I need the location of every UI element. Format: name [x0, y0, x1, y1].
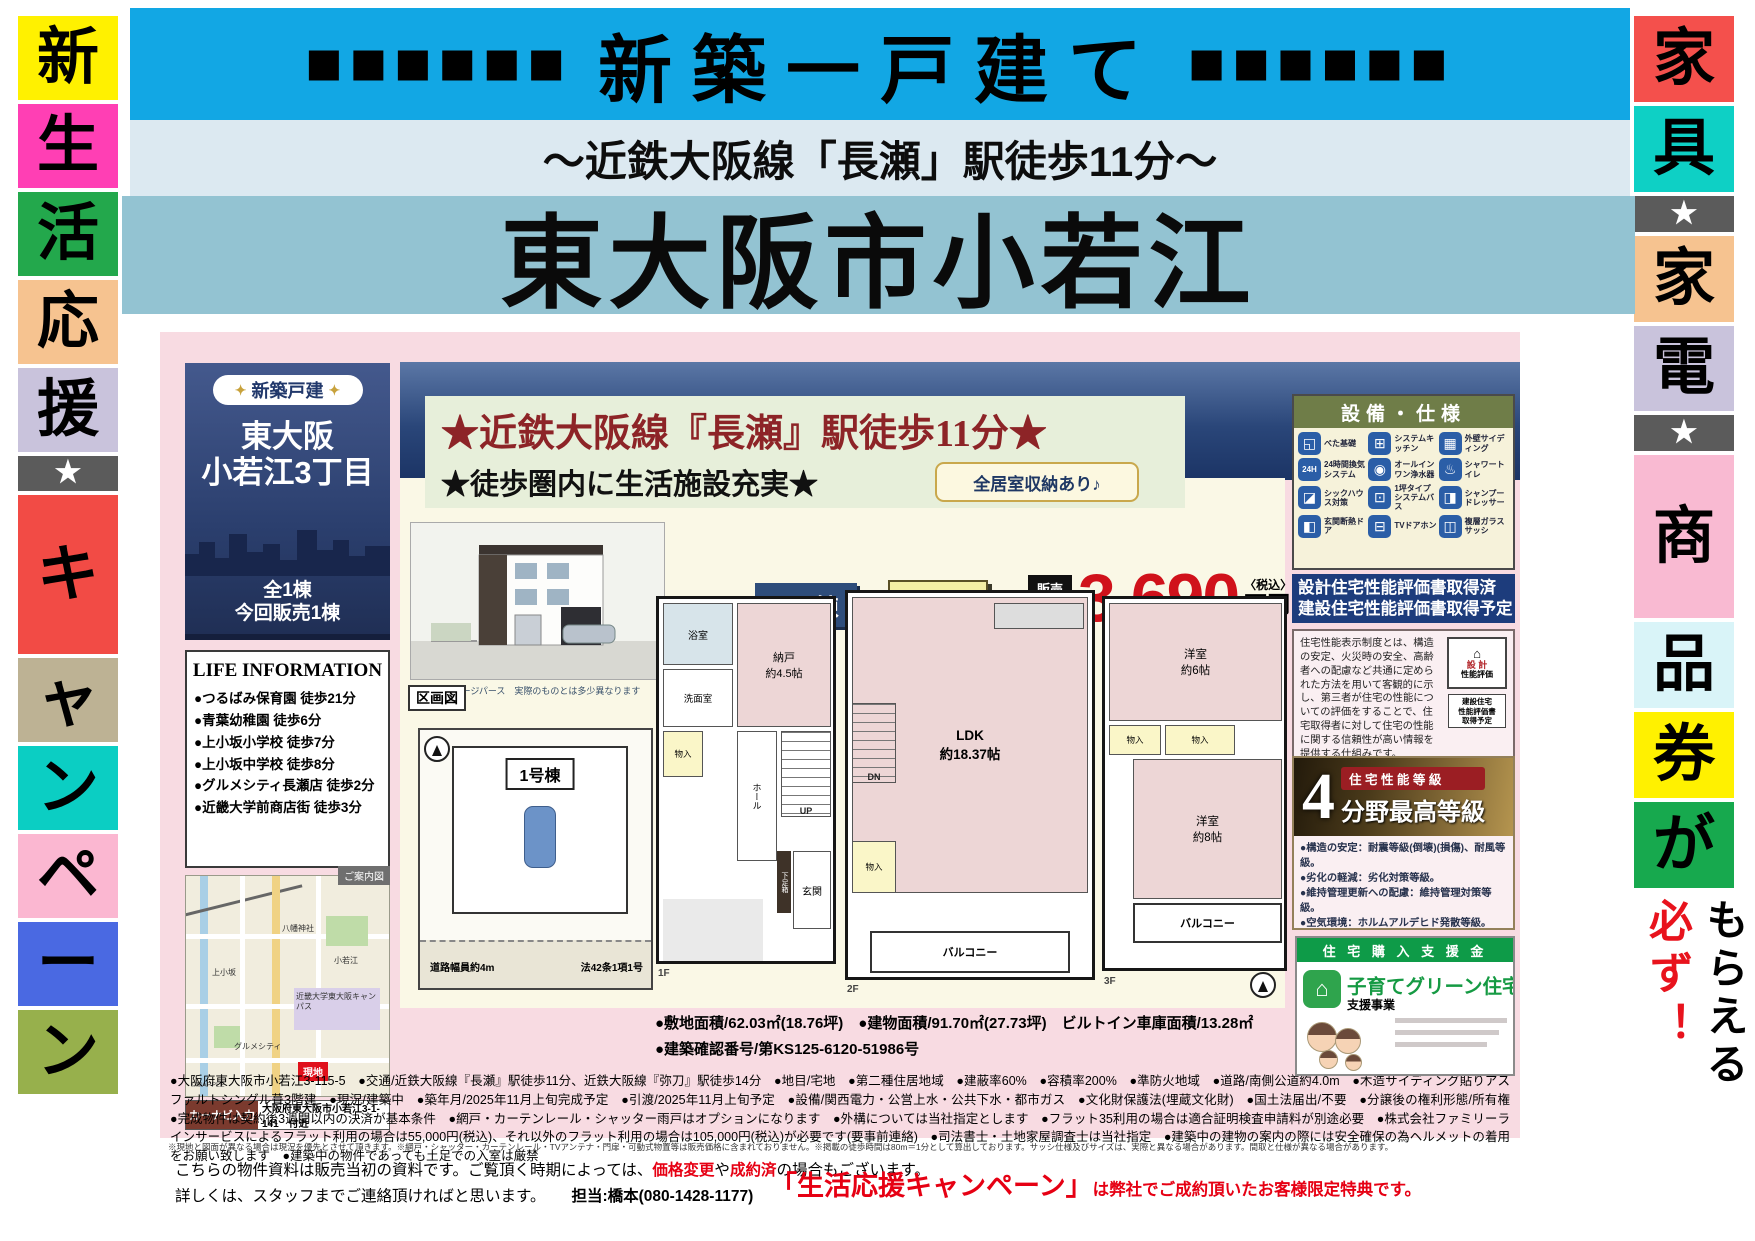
equipment-label: 玄関断熱ドア [1324, 517, 1368, 535]
equipment-icon: ◉ [1368, 458, 1391, 481]
property-name-panel: ✦ 新築戸建 ✦ 東大阪 小若江3丁目 全1棟 今回販売1棟 [185, 363, 390, 640]
balcony: バルコニー [870, 931, 1070, 973]
equipment-label: 1坪タイプシステムバス [1394, 484, 1438, 512]
life-information-item: ●グルメシティ長瀬店 徒歩2分 [194, 775, 381, 797]
banner-squares-right: ■■■■■■ [1188, 33, 1455, 95]
equipment-item: ◪シックハウス対策 [1298, 484, 1368, 512]
campaign-condition: は弊社でご成約頂いたお客様限定特典です。 [1093, 1176, 1421, 1200]
closet: 物入 [852, 841, 896, 893]
equipment-icon: ⊡ [1368, 486, 1391, 509]
washroom: 洗面室 [663, 669, 733, 727]
shoe-box: 下足箱 [777, 851, 791, 913]
equipment-icon: ♨ [1439, 458, 1462, 481]
design-eval-stamp-icon: ⌂ 設 計 性能評価 [1447, 637, 1507, 689]
plot-lot: 1号棟 [452, 746, 628, 914]
equipment-icon: ◪ [1298, 486, 1321, 509]
new-build-badge: ✦ 新築戸建 ✦ [213, 375, 363, 405]
equipment-grid: ◱べた基礎⊞システムキッチン▦外壁サイディング24H24時間換気システム◉オール… [1294, 428, 1513, 542]
campaign-name: 「生活応援キャンペーン」 [770, 1164, 1093, 1203]
floor-plan-1f: 浴室 洗面室 納戸 約4.5帖 物入 ホール UP 下足箱 玄関 [656, 596, 836, 964]
star-separator-icon: ★ [18, 456, 118, 491]
equipment-icon: ◱ [1298, 432, 1321, 455]
support-fine-line [1395, 1030, 1499, 1035]
life-information-item: ●上小坂小学校 徒歩7分 [194, 732, 381, 754]
equipment-item: ◉オールインワン浄水器 [1368, 458, 1438, 481]
balcony: バルコニー [1133, 903, 1282, 943]
performance-eval-body: 住宅性能表示制度とは、構造の安定、火災時の安全、高齢者への配慮など共通に定められ… [1292, 629, 1515, 769]
flyer-page: 新生活応援★キャンペーン 家具★家電★商品券が 必ず！ もらえる ■■■■■■ … [0, 0, 1755, 1241]
banner-title: 新築一戸建て [598, 11, 1162, 118]
performance-eval-description: 住宅性能表示制度とは、構造の安定、火災時の安全、高齢者への配慮など共通に定められ… [1300, 637, 1442, 761]
grade-label-badge: 住 宅 性 能 等 級 [1341, 767, 1485, 790]
car-icon [524, 806, 556, 868]
units-count: 全1棟 今回販売1棟 [185, 579, 390, 627]
floor-tag-3f: 3F [1104, 976, 1116, 987]
equipment-item: ◨シャンプードレッサー [1439, 484, 1509, 512]
map-road [186, 1058, 389, 1063]
compass-icon [424, 736, 450, 762]
right-campaign-strip: 家具★家電★商品券が [1634, 16, 1734, 888]
star-separator-icon: ★ [1634, 196, 1734, 232]
equipment-label: シャンプードレッサー [1465, 489, 1509, 507]
storage-room: 納戸 約4.5帖 [737, 603, 831, 727]
equipment-label: シャワートイレ [1465, 460, 1509, 478]
campaign-character: 具 [1634, 106, 1734, 192]
family-illustration [1335, 1028, 1361, 1054]
life-information-item: ●つるばみ保育園 徒歩21分 [194, 688, 381, 710]
area-map: 八幡神社 上小坂 近畿大学東大阪キャンパス グルメシティ 小若江 現地 ©MAP… [185, 875, 390, 1097]
stairs-up: UP [781, 731, 831, 817]
grade-items-list: ●構造の安定：耐震等級(倒壊)(損傷)、耐風等級。●劣化の軽減：劣化対策等級。●… [1294, 836, 1513, 938]
campaign-character: 家 [1634, 16, 1734, 102]
family-illustration [1319, 1050, 1338, 1069]
campaign-character: が [1634, 802, 1734, 888]
right-strip-get-text: もらえる [1694, 898, 1755, 1090]
campaign-disclaimer: 「生活応援キャンペーン」 は弊社でご成約頂いたお客様限定特典です。 [770, 1164, 1421, 1203]
equipment-label: システムキッチン [1394, 434, 1438, 452]
equipment-label: オールインワン浄水器 [1394, 460, 1438, 478]
closet: 物入 [1109, 725, 1161, 755]
equipment-item: 24H24時間換気システム [1298, 458, 1368, 481]
life-information-item: ●近畿大学前商店街 徒歩3分 [194, 797, 381, 819]
road-law-label: 法42条1項1号 [581, 959, 643, 974]
left-campaign-strip: 新生活応援★キャンペーン [18, 16, 118, 1094]
equipment-icon: ◧ [1298, 515, 1321, 538]
fine-print: ※現地と図面が異なる場合は現況を優先とさせて頂きます。※網戸・シャッター・カーテ… [168, 1141, 1518, 1153]
campaign-character: 援 [18, 368, 118, 452]
life-information-list: ●つるばみ保育園 徒歩21分●青葉幼稚園 徒歩6分●上小坂小学校 徒歩7分●上小… [187, 682, 388, 819]
campaign-character: 品 [1634, 622, 1734, 708]
star-separator-icon: ★ [1634, 415, 1734, 451]
equipment-icon: ◫ [1439, 515, 1462, 538]
campaign-character: 家 [1634, 236, 1734, 322]
campaign-character: ー [18, 922, 118, 1006]
support-body: ⌂ 子育てグリーン住宅 支援事業 [1297, 962, 1513, 1076]
grade-highest-text: 分野最高等級 [1341, 792, 1485, 827]
equipment-item: ▦外壁サイディング [1439, 432, 1509, 455]
campaign-character: 生 [18, 104, 118, 188]
laurel-left-icon: ✦ [235, 382, 247, 399]
campaign-character: 応 [18, 280, 118, 364]
grade-item: ●維持管理更新への配慮：維持管理対策等級。 [1300, 887, 1507, 917]
campaign-character: ン [18, 1010, 118, 1094]
top-banner: ■■■■■■ 新築一戸建て ■■■■■■ [130, 8, 1630, 120]
bathroom: 浴室 [663, 603, 733, 665]
new-build-badge-label: 新築戸建 [252, 377, 324, 403]
map-label-shrine: 八幡神社 [282, 924, 314, 934]
performance-eval-banner: 設計住宅性能評価書取得済 建設住宅性能評価書取得予定 [1292, 574, 1515, 623]
plot-plan-tag: 区画図 [408, 685, 466, 711]
performance-grade-panel: 4 住 宅 性 能 等 級 分野最高等級 ●構造の安定：耐震等級(倒壊)(損傷)… [1292, 756, 1515, 930]
hall: ホール [737, 731, 777, 861]
banner-squares-left: ■■■■■■ [305, 33, 572, 95]
support-title: 子育てグリーン住宅 [1347, 970, 1515, 999]
campaign-character: ャ [18, 658, 118, 742]
life-information-box: LIFE INFORMATION ●つるばみ保育園 徒歩21分●青葉幼稚園 徒歩… [185, 650, 390, 868]
campaign-character: キ [18, 495, 118, 654]
equipment-item: ◱べた基礎 [1298, 432, 1368, 455]
life-information-item: ●青葉幼稚園 徒歩6分 [194, 710, 381, 732]
floor-tag-1f: 1F [658, 968, 670, 979]
price-tax-note: 〈税込〉 [1244, 579, 1292, 592]
support-panel: 住 宅 購 入 支 援 金 ⌂ 子育てグリーン住宅 支援事業 [1295, 936, 1515, 1076]
family-illustration [1345, 1054, 1362, 1071]
right-strip-must-text: 必ず！ [1634, 898, 1698, 1054]
support-fine-line [1395, 1018, 1507, 1023]
closet: 物入 [663, 731, 703, 777]
performance-eval-panel: 設計住宅性能評価書取得済 建設住宅性能評価書取得予定 住宅性能表示制度とは、構造… [1292, 574, 1515, 756]
closet: 物入 [1165, 725, 1235, 755]
equipment-label: 24時間換気システム [1324, 460, 1368, 478]
equipment-icon: 24H [1298, 458, 1321, 481]
house-illustration [411, 523, 664, 679]
flyer-body: ★近鉄大阪線『長瀬』駅徒歩11分★ ★徒歩圏内に生活施設充実★ ✦ 新築戸建 ✦… [160, 332, 1520, 1138]
map-label-university: 近畿大学東大阪キャンパス [296, 992, 376, 1011]
plot-plan: 1号棟 道路幅員約4m 法42条1項1号 [418, 728, 653, 990]
grade-item: ●劣化の軽減：劣化対策等級。 [1300, 872, 1507, 887]
floor-plan-3f: 洋室 約6帖 物入 物入 洋室 約8帖 バルコニー [1102, 596, 1287, 971]
road-width-label: 道路幅員約4m [430, 959, 494, 974]
campaign-character: ペ [18, 834, 118, 918]
page-title: 東大阪市小若江 [122, 196, 1635, 314]
life-information-title: LIFE INFORMATION [187, 660, 388, 682]
park-area [326, 916, 368, 946]
property-area-name: 東大阪 小若江3丁目 [185, 419, 390, 490]
equipment-label: 複層ガラスサッシ [1465, 517, 1509, 535]
campaign-character: 商 [1634, 455, 1734, 618]
equipment-item: ⊡1坪タイプシステムバス [1368, 484, 1438, 512]
eval-stamps: ⌂ 設 計 性能評価 建設住宅 性能評価書 取得予定 [1447, 637, 1507, 761]
compass-icon [1250, 972, 1276, 998]
equipment-panel: 設備・仕様 ◱べた基礎⊞システムキッチン▦外壁サイディング24H24時間換気シス… [1292, 394, 1515, 570]
support-fine-line [1395, 1042, 1487, 1047]
floor-plan-2f: LDK 約18.37帖 DN 物入 バルコニー [845, 590, 1095, 980]
campaign-character: 電 [1634, 326, 1734, 412]
campaign-character: 活 [18, 192, 118, 276]
kitchen-counter [994, 603, 1084, 629]
equipment-icon: ▦ [1439, 432, 1462, 455]
support-subtitle: 支援事業 [1347, 996, 1395, 1013]
equipment-label: TVドアホン [1394, 521, 1436, 530]
grade-gold-banner: 4 住 宅 性 能 等 級 分野最高等級 [1294, 758, 1513, 836]
map-label-gourmet-city: グルメシティ [234, 1042, 282, 1052]
house-render-image [410, 522, 665, 680]
equipment-label: シックハウス対策 [1324, 489, 1368, 507]
equipment-item: ◫複層ガラスサッシ [1439, 515, 1509, 538]
equipment-label: 外壁サイディング [1465, 434, 1509, 452]
storage-badge: 全居室収納あり♪ [935, 462, 1139, 502]
grade-item: ●構造の安定：耐震等級(倒壊)(損傷)、耐風等級。 [1300, 842, 1507, 872]
map-tab: ご案内図 [338, 866, 390, 885]
equipment-item: ⊟TVドアホン [1368, 515, 1438, 538]
map-label-kowakae: 小若江 [334, 956, 358, 966]
grade-item: ●空気環境：ホルムアルデヒド発散等級。 [1300, 917, 1507, 932]
map-road [240, 876, 245, 1096]
equipment-item: ◧玄関断熱ドア [1298, 515, 1368, 538]
equipment-icon: ⊞ [1368, 432, 1391, 455]
map-label-kamikosaka: 上小坂 [212, 968, 236, 978]
family-illustration [1307, 1022, 1337, 1052]
equipment-item: ⊞システムキッチン [1368, 432, 1438, 455]
equipment-title: 設備・仕様 [1294, 396, 1513, 428]
map-main-road [272, 876, 280, 1096]
campaign-character: ン [18, 746, 118, 830]
entrance: 玄関 [793, 851, 831, 929]
construction-eval-stamp: 建設住宅 性能評価書 取得予定 [1448, 694, 1506, 728]
western-room-6: 洋室 約6帖 [1109, 603, 1282, 721]
lot-number-label: 1号棟 [506, 758, 575, 790]
life-information-item: ●上小坂中学校 徒歩8分 [194, 754, 381, 776]
campaign-character: 新 [18, 16, 118, 100]
stairs-down: DN [852, 703, 896, 783]
laurel-right-icon: ✦ [329, 382, 341, 399]
porch-area [663, 899, 763, 961]
contact-phone: 担当:橋本(080-1428-1177) [571, 1188, 753, 1205]
grade-number: 4 [1302, 764, 1335, 830]
campaign-character: 券 [1634, 712, 1734, 798]
city-skyline-icon [185, 524, 390, 576]
equipment-label: べた基礎 [1324, 439, 1356, 448]
green-house-icon: ⌂ [1303, 970, 1341, 1008]
equipment-icon: ⊟ [1368, 515, 1391, 538]
equipment-item: ♨シャワートイレ [1439, 458, 1509, 481]
western-room-8: 洋室 約8帖 [1133, 759, 1282, 899]
support-banner: 住 宅 購 入 支 援 金 [1297, 938, 1513, 962]
equipment-icon: ◨ [1439, 486, 1462, 509]
headline-station: ★近鉄大阪線『長瀬』駅徒歩11分★ [441, 402, 1169, 457]
floor-tag-2f: 2F [847, 984, 859, 995]
